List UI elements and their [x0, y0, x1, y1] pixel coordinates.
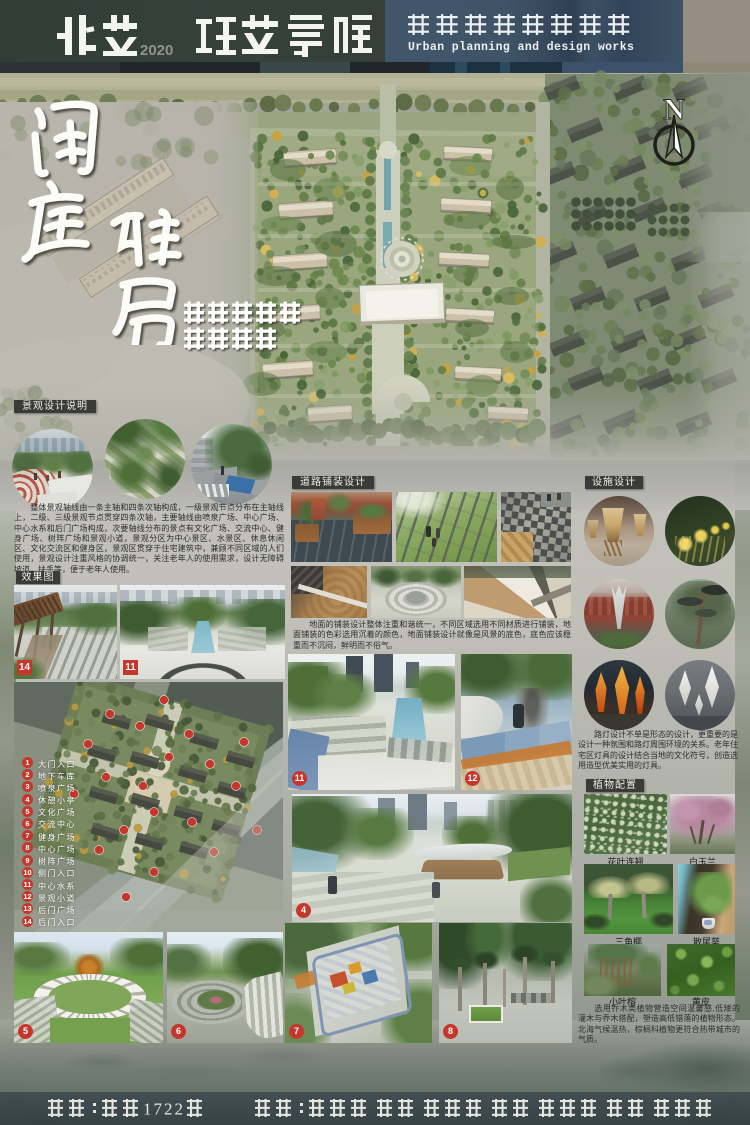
svg-text:2020: 2020 [140, 42, 173, 59]
svg-text:1722: 1722 [143, 1100, 185, 1119]
